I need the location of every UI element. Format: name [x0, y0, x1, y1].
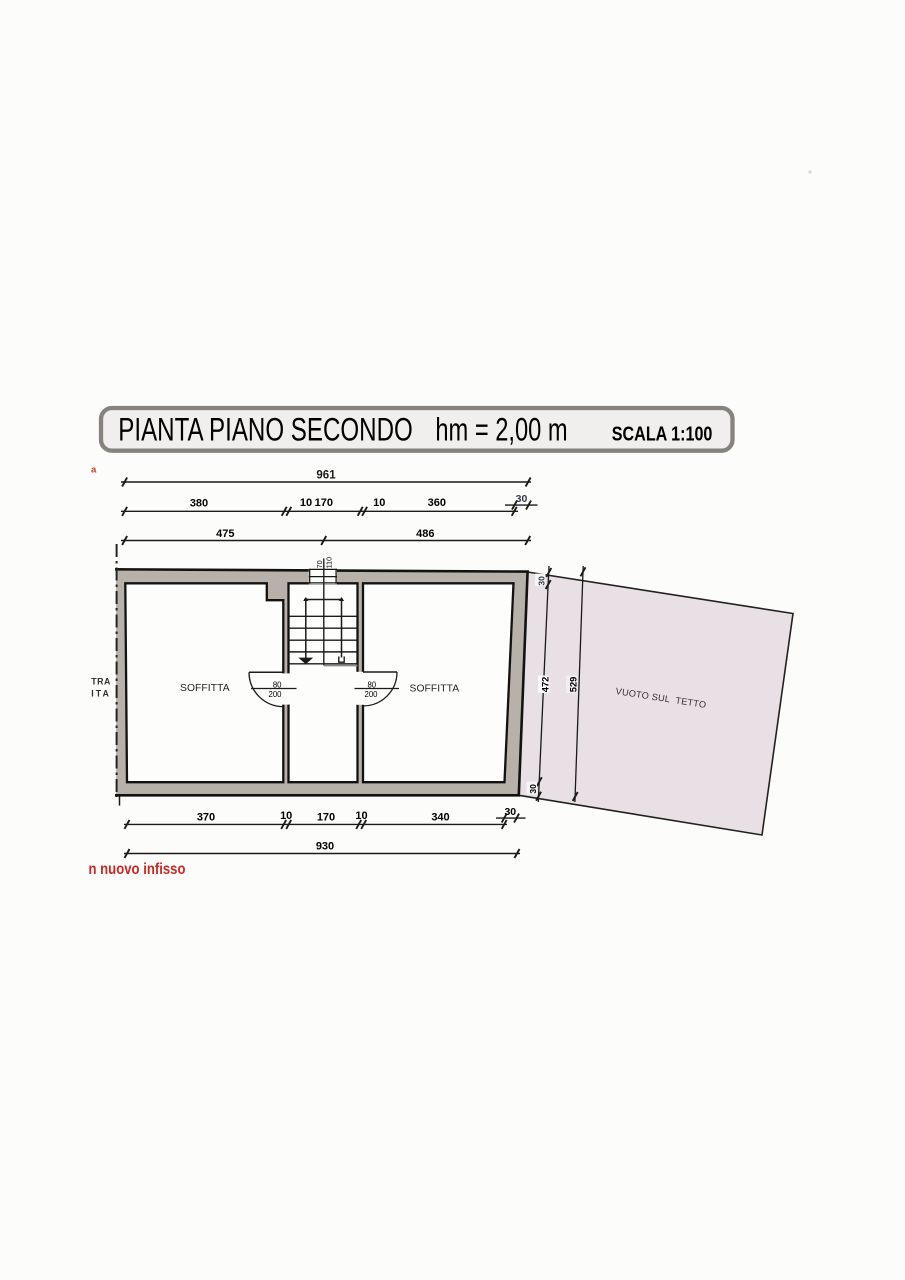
svg-text:n nuovo infisso: n nuovo infisso: [89, 861, 186, 878]
svg-text:SOFFITTA: SOFFITTA: [410, 684, 460, 695]
svg-text:475: 475: [216, 528, 234, 540]
svg-text:TRA: TRA: [91, 677, 111, 687]
svg-text:30: 30: [516, 493, 528, 505]
svg-text:360: 360: [428, 497, 446, 509]
svg-text:370: 370: [197, 811, 215, 823]
svg-text:hm = 2,00 m: hm = 2,00 m: [435, 412, 567, 448]
svg-text:a: a: [91, 465, 97, 476]
svg-text:30: 30: [537, 576, 547, 586]
svg-text:529: 529: [568, 677, 578, 693]
svg-text:340: 340: [431, 811, 449, 823]
svg-text:10: 10: [373, 497, 385, 509]
svg-text:10: 10: [300, 497, 312, 509]
svg-text:30: 30: [528, 784, 538, 794]
svg-text:80: 80: [367, 680, 376, 689]
svg-text:30: 30: [504, 806, 516, 818]
svg-text:SCALA 1:100: SCALA 1:100: [612, 423, 713, 445]
svg-text:930: 930: [316, 841, 334, 853]
svg-text:472: 472: [540, 677, 550, 693]
svg-text:170: 170: [315, 497, 333, 509]
svg-text:10: 10: [355, 810, 367, 822]
svg-text:200: 200: [364, 690, 378, 699]
svg-text:110: 110: [327, 557, 334, 568]
svg-text:SOFFITTA: SOFFITTA: [180, 683, 230, 694]
svg-text:PIANTA PIANO SECONDO: PIANTA PIANO SECONDO: [118, 412, 413, 448]
svg-text:486: 486: [416, 528, 434, 540]
svg-text:200: 200: [268, 690, 282, 699]
svg-text:961: 961: [316, 470, 336, 482]
svg-text:80: 80: [273, 680, 282, 689]
svg-text:380: 380: [190, 498, 208, 510]
svg-text:10: 10: [280, 810, 292, 822]
svg-text:170: 170: [317, 811, 335, 823]
